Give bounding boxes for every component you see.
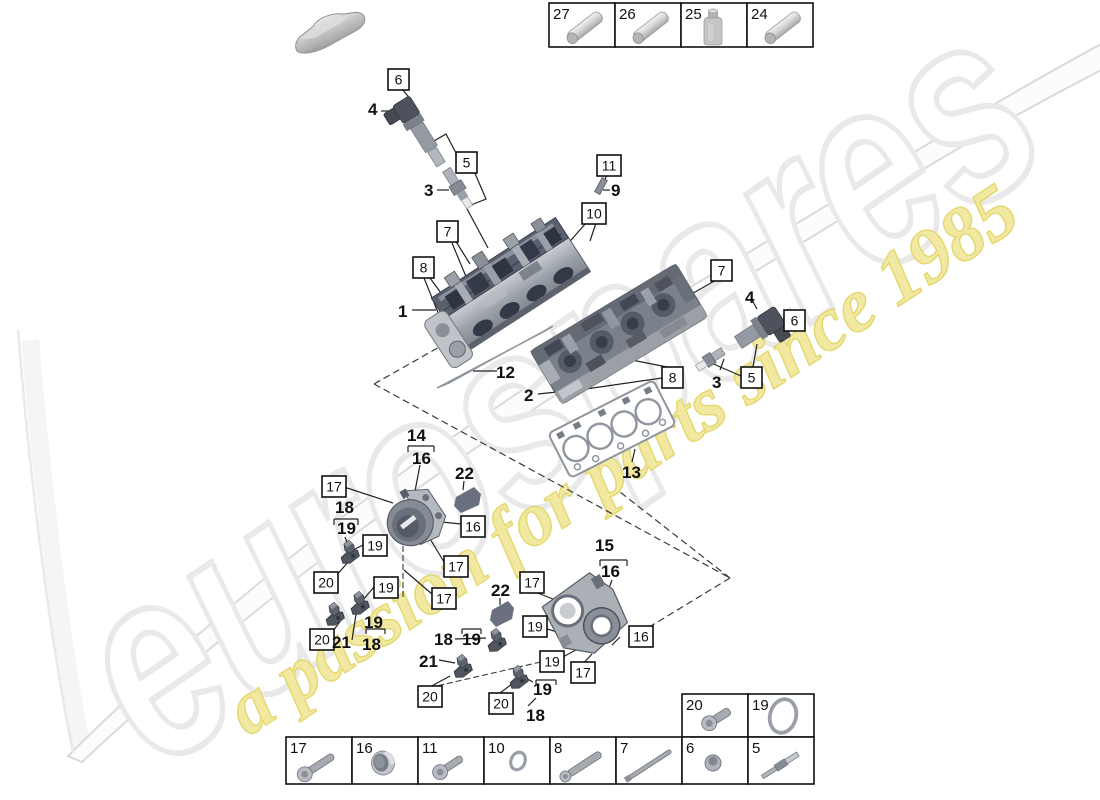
svg-text:12: 12 — [496, 363, 515, 382]
svg-text:5: 5 — [748, 370, 756, 386]
svg-text:19: 19 — [367, 538, 383, 554]
svg-text:7: 7 — [718, 263, 726, 279]
svg-text:5: 5 — [752, 740, 760, 757]
svg-text:7: 7 — [620, 740, 628, 757]
svg-text:16: 16 — [465, 519, 481, 535]
svg-text:19: 19 — [752, 697, 769, 714]
svg-text:19: 19 — [337, 519, 356, 538]
svg-text:18: 18 — [362, 635, 381, 654]
svg-text:19: 19 — [462, 630, 481, 649]
svg-text:20: 20 — [686, 697, 703, 714]
svg-text:18: 18 — [335, 498, 354, 517]
svg-text:16: 16 — [601, 562, 620, 581]
svg-text:19: 19 — [378, 580, 394, 596]
svg-text:1: 1 — [398, 302, 407, 321]
svg-text:20: 20 — [318, 575, 334, 591]
svg-text:16: 16 — [633, 629, 649, 645]
svg-text:19: 19 — [533, 680, 552, 699]
svg-text:17: 17 — [524, 575, 540, 591]
svg-text:19: 19 — [544, 654, 560, 670]
svg-text:17: 17 — [436, 591, 452, 607]
svg-text:8: 8 — [554, 740, 562, 757]
svg-text:10: 10 — [586, 206, 602, 222]
svg-text:10: 10 — [488, 740, 505, 757]
svg-text:20: 20 — [493, 696, 509, 712]
svg-text:25: 25 — [685, 6, 702, 23]
svg-text:13: 13 — [622, 463, 641, 482]
svg-text:22: 22 — [491, 581, 510, 600]
svg-text:20: 20 — [422, 689, 438, 705]
svg-text:24: 24 — [751, 6, 768, 23]
svg-text:21: 21 — [332, 633, 351, 652]
svg-text:3: 3 — [424, 181, 433, 200]
svg-text:7: 7 — [444, 224, 452, 240]
svg-text:22: 22 — [455, 464, 474, 483]
svg-text:5: 5 — [463, 155, 471, 171]
svg-text:17: 17 — [575, 665, 591, 681]
svg-text:17: 17 — [290, 740, 307, 757]
svg-text:18: 18 — [434, 630, 453, 649]
svg-text:18: 18 — [526, 706, 545, 725]
svg-text:6: 6 — [686, 740, 694, 757]
svg-text:3: 3 — [712, 373, 721, 392]
svg-text:9: 9 — [611, 181, 620, 200]
svg-text:4: 4 — [745, 288, 755, 307]
svg-text:2: 2 — [524, 386, 533, 405]
svg-text:8: 8 — [420, 260, 428, 276]
svg-text:21: 21 — [419, 652, 438, 671]
svg-text:6: 6 — [791, 313, 799, 329]
svg-text:6: 6 — [395, 72, 403, 88]
svg-text:16: 16 — [356, 740, 373, 757]
svg-text:17: 17 — [448, 559, 464, 575]
svg-text:20: 20 — [314, 632, 330, 648]
svg-text:4: 4 — [368, 100, 378, 119]
svg-text:26: 26 — [619, 6, 636, 23]
svg-text:27: 27 — [553, 6, 570, 23]
svg-text:17: 17 — [326, 479, 342, 495]
svg-text:14: 14 — [407, 426, 426, 445]
svg-text:15: 15 — [595, 536, 614, 555]
svg-text:19: 19 — [527, 619, 543, 635]
svg-text:11: 11 — [422, 740, 438, 757]
svg-text:8: 8 — [669, 370, 677, 386]
svg-text:11: 11 — [602, 158, 617, 174]
svg-text:19: 19 — [364, 613, 383, 632]
svg-text:16: 16 — [412, 449, 431, 468]
